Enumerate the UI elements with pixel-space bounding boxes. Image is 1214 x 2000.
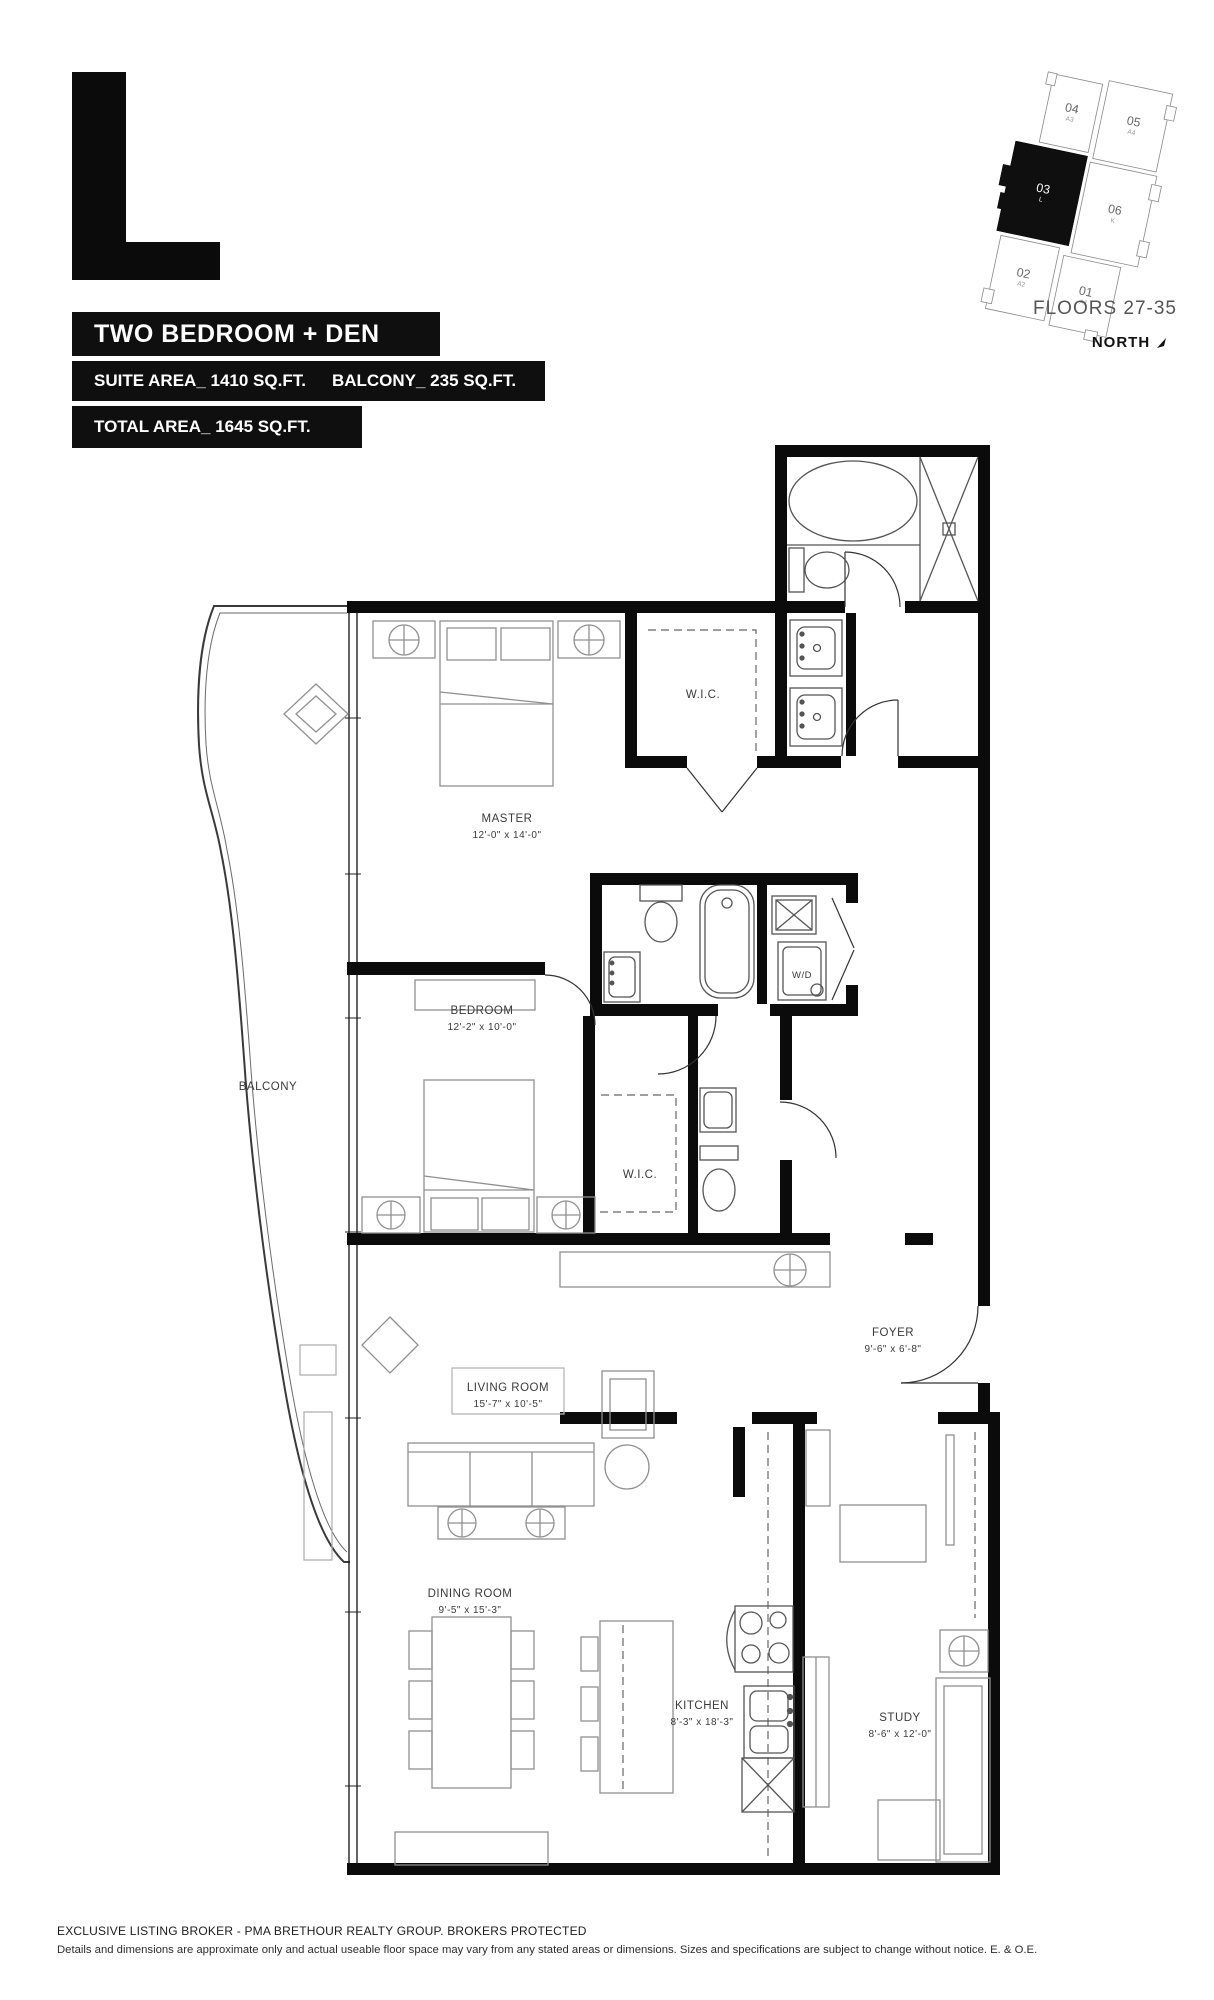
dining-table <box>432 1617 511 1788</box>
label-master: MASTER <box>482 813 533 825</box>
label-study: STUDY <box>879 1712 920 1724</box>
sideboard <box>395 1832 548 1865</box>
label-foyer: FOYER <box>872 1327 914 1339</box>
label-kitchen: KITCHEN <box>675 1700 729 1712</box>
label-living-room: LIVING ROOM <box>467 1382 549 1394</box>
powder-bath-fixtures <box>700 1088 738 1211</box>
toilet-tank <box>700 1146 738 1160</box>
chair <box>511 1681 534 1719</box>
bed <box>424 1080 534 1232</box>
label-master-dims: 12'-0" x 14'-0" <box>472 830 541 841</box>
label-study-dims: 8'-6" x 12'-0" <box>869 1729 932 1740</box>
floorplan-page: { "suite": { "letter": "L", "type": "TWO… <box>0 0 1214 2000</box>
bedroom2-furniture <box>362 980 595 1233</box>
chair <box>409 1681 432 1719</box>
label-wic-bedroom: W.I.C. <box>623 1169 657 1181</box>
main-bath-fixtures <box>604 885 826 1002</box>
label-washer-dryer: W/D <box>792 970 812 981</box>
kitchen-sink <box>744 1686 794 1758</box>
side-table <box>605 1445 649 1489</box>
closet-rod <box>946 1435 954 1545</box>
stool <box>581 1687 598 1721</box>
chair <box>511 1631 534 1669</box>
kitchen-furniture <box>581 1621 673 1793</box>
toilet-tank <box>640 885 682 901</box>
accent-chair <box>284 684 348 744</box>
corner-chair <box>362 1317 418 1373</box>
chaise <box>878 1800 940 1860</box>
toilet-bowl <box>805 552 849 588</box>
broker-line: EXCLUSIVE LISTING BROKER - PMA BRETHOUR … <box>57 1924 1177 1938</box>
label-bedroom-dims: 12'-2" x 10'-0" <box>447 1022 516 1033</box>
kitchen-fixtures <box>727 1606 794 1812</box>
label-bedroom: BEDROOM <box>451 1005 514 1017</box>
stool <box>581 1737 598 1771</box>
bathtub-oval <box>789 461 917 541</box>
master-bedroom-furniture <box>284 621 620 786</box>
toilet-bowl <box>645 902 677 942</box>
label-wic-master: W.I.C. <box>686 689 720 701</box>
disclaimer-line: Details and dimensions are approximate o… <box>57 1944 1197 1956</box>
desk <box>840 1505 926 1562</box>
label-balcony: BALCONY <box>239 1081 297 1093</box>
label-living-room-dims: 15'-7" x 10'-5" <box>473 1399 542 1410</box>
label-kitchen-dims: 8'-3" x 18'-3" <box>671 1717 734 1728</box>
label-dining-room: DINING ROOM <box>428 1588 513 1600</box>
chair <box>511 1731 534 1769</box>
bathtub <box>700 885 754 998</box>
toilet-bowl <box>703 1169 735 1211</box>
toilet-tank <box>789 548 804 592</box>
cabinet <box>806 1430 830 1506</box>
stool <box>581 1637 598 1671</box>
chair <box>409 1731 432 1769</box>
kitchen-island <box>600 1621 673 1793</box>
master-bath-fixtures <box>787 457 978 601</box>
vanity-sinks <box>790 620 842 746</box>
living-room-furniture <box>362 1252 830 1539</box>
study-furniture <box>803 1430 990 1862</box>
label-foyer-dims: 9'-6" x 6'-8" <box>865 1344 922 1355</box>
chair <box>409 1631 432 1669</box>
label-dining-room-dims: 9'-5" x 15'-3" <box>439 1605 502 1616</box>
dining-room-furniture <box>395 1617 548 1865</box>
floorplan-drawing: MASTER 12'-0" x 14'-0" W.I.C. BEDROOM 12… <box>0 0 1214 2000</box>
